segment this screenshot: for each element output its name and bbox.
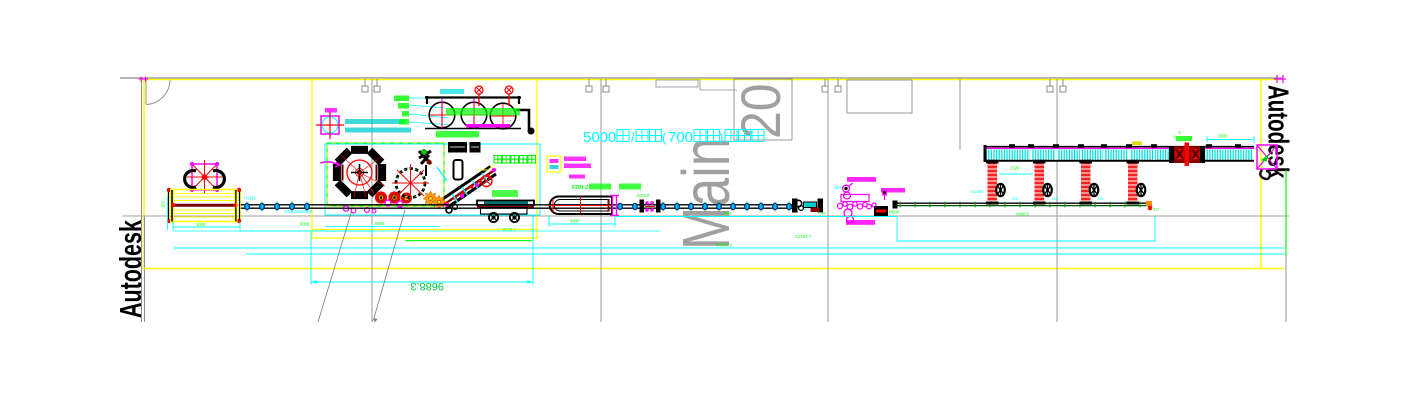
svg-text:150: 150 — [161, 200, 166, 208]
svg-text:1520: 1520 — [1010, 166, 1020, 171]
svg-text:Autodesk: Autodesk — [113, 220, 148, 318]
svg-text:4806.5: 4806.5 — [1016, 212, 1029, 217]
svg-text:A: A — [1173, 134, 1176, 139]
svg-text:/: / — [631, 130, 635, 145]
svg-text:5.7: 5.7 — [804, 208, 809, 212]
svg-text:6000: 6000 — [300, 222, 310, 227]
svg-text:4000 /1500M/S: 4000 /1500M/S — [284, 209, 313, 214]
svg-text:(: ( — [662, 130, 667, 145]
svg-text:64600.2: 64600.2 — [716, 243, 733, 248]
svg-text:): ) — [719, 130, 723, 145]
svg-text:700: 700 — [668, 129, 693, 146]
svg-text:12793.7: 12793.7 — [795, 234, 812, 239]
svg-text:H1010: H1010 — [637, 193, 650, 198]
svg-text:20: 20 — [730, 83, 792, 139]
svg-text:Main: Main — [669, 137, 744, 250]
svg-text:1000: 1000 — [722, 211, 732, 216]
svg-text:H1210: H1210 — [244, 196, 257, 201]
svg-text:FDH-2: FDH-2 — [572, 185, 588, 191]
svg-text:H1000: H1000 — [971, 189, 984, 194]
svg-text:Autodesk: Autodesk — [1262, 85, 1294, 179]
svg-text:2800: 2800 — [1218, 134, 1228, 139]
svg-text:3400: 3400 — [570, 219, 580, 224]
svg-text:1000: 1000 — [196, 222, 206, 227]
svg-text:9688.3: 9688.3 — [410, 280, 444, 292]
svg-text:614: 614 — [1153, 208, 1159, 212]
svg-text:500: 500 — [1098, 197, 1104, 201]
svg-text:A: A — [1178, 130, 1181, 135]
svg-text:500: 500 — [1052, 197, 1058, 201]
svg-text:5000: 5000 — [583, 129, 616, 146]
svg-text:7500: 7500 — [818, 212, 826, 216]
svg-text:H500: H500 — [889, 210, 900, 215]
svg-text:5000: 5000 — [375, 221, 385, 226]
svg-text:500: 500 — [1012, 197, 1018, 201]
